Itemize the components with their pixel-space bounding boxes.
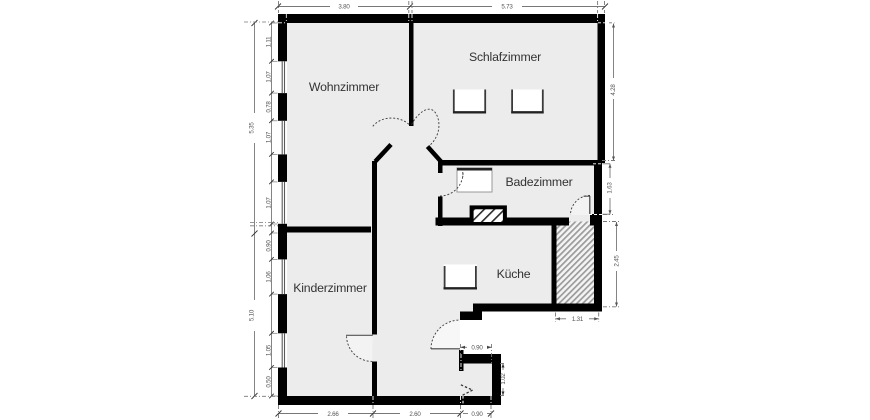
svg-text:2.45: 2.45 <box>614 255 621 267</box>
svg-text:0.90: 0.90 <box>266 240 273 252</box>
svg-text:5.73: 5.73 <box>501 3 513 10</box>
svg-text:1.07: 1.07 <box>266 197 273 209</box>
svg-text:0.90: 0.90 <box>471 345 483 352</box>
svg-text:Schlafzimmer: Schlafzimmer <box>469 50 541 64</box>
svg-text:5.35: 5.35 <box>249 122 256 134</box>
svg-text:1.63: 1.63 <box>607 182 614 194</box>
svg-text:2.60: 2.60 <box>409 411 421 418</box>
svg-text:Kinderzimmer: Kinderzimmer <box>293 281 367 295</box>
svg-text:1.31: 1.31 <box>572 316 584 323</box>
svg-text:3.80: 3.80 <box>338 3 350 10</box>
svg-text:1.02: 1.02 <box>500 373 507 385</box>
svg-text:Küche: Küche <box>497 267 531 281</box>
svg-text:1.05: 1.05 <box>266 344 273 356</box>
svg-text:0.78: 0.78 <box>266 101 273 113</box>
svg-text:0.50: 0.50 <box>266 376 273 388</box>
svg-text:1.11: 1.11 <box>266 36 273 48</box>
svg-text:0.90: 0.90 <box>471 411 483 418</box>
svg-text:5.10: 5.10 <box>249 309 256 321</box>
svg-text:1.07: 1.07 <box>266 71 273 83</box>
svg-text:4.28: 4.28 <box>610 84 617 96</box>
svg-text:1.06: 1.06 <box>266 271 273 283</box>
svg-text:1.07: 1.07 <box>266 131 273 143</box>
svg-text:Wohnzimmer: Wohnzimmer <box>309 80 379 94</box>
svg-text:Badezimmer: Badezimmer <box>505 175 572 189</box>
svg-text:2.66: 2.66 <box>327 411 339 418</box>
